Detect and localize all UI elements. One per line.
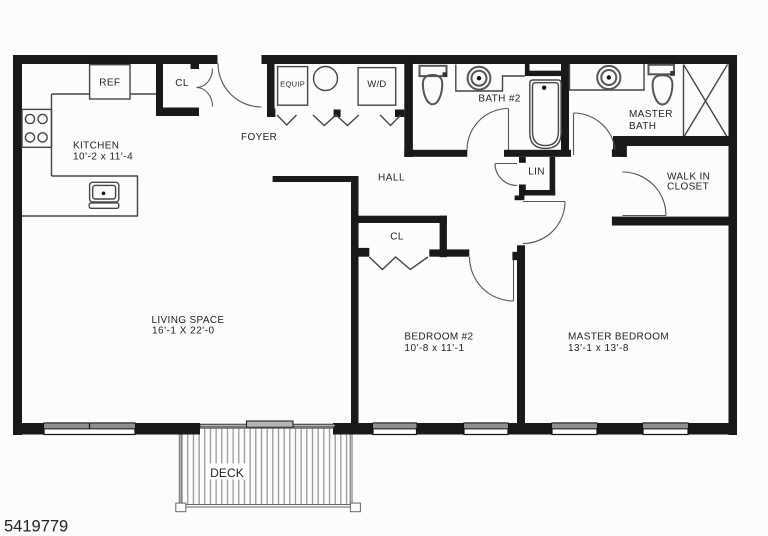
svg-text:CLOSET: CLOSET xyxy=(667,182,709,193)
svg-text:KITCHEN: KITCHEN xyxy=(73,141,119,152)
svg-text:LIVING SPACE: LIVING SPACE xyxy=(152,315,225,326)
svg-text:10'-2 x 11'-4: 10'-2 x 11'-4 xyxy=(73,152,133,163)
svg-text:MASTER BEDROOM: MASTER BEDROOM xyxy=(568,332,669,343)
svg-text:LIN: LIN xyxy=(528,167,544,178)
svg-text:CL: CL xyxy=(390,232,404,243)
svg-text:EQUIP: EQUIP xyxy=(280,80,305,89)
svg-text:13'-1 x 13'-8: 13'-1 x 13'-8 xyxy=(568,343,629,354)
svg-text:W/D: W/D xyxy=(367,79,386,90)
svg-text:FOYER: FOYER xyxy=(241,132,277,143)
svg-text:BATH: BATH xyxy=(629,121,656,132)
svg-text:5419779: 5419779 xyxy=(4,518,68,536)
svg-text:BEDROOM #2: BEDROOM #2 xyxy=(404,332,473,343)
svg-text:CL: CL xyxy=(175,78,189,89)
svg-text:HALL: HALL xyxy=(378,173,405,184)
svg-text:REF: REF xyxy=(99,78,120,89)
svg-text:DECK: DECK xyxy=(210,466,244,480)
svg-text:10'-8 x 11'-1: 10'-8 x 11'-1 xyxy=(404,343,464,354)
svg-text:16'-1 X 22'-0: 16'-1 X 22'-0 xyxy=(152,326,215,337)
svg-text:BATH #2: BATH #2 xyxy=(478,94,520,105)
svg-text:MASTER: MASTER xyxy=(629,109,673,120)
